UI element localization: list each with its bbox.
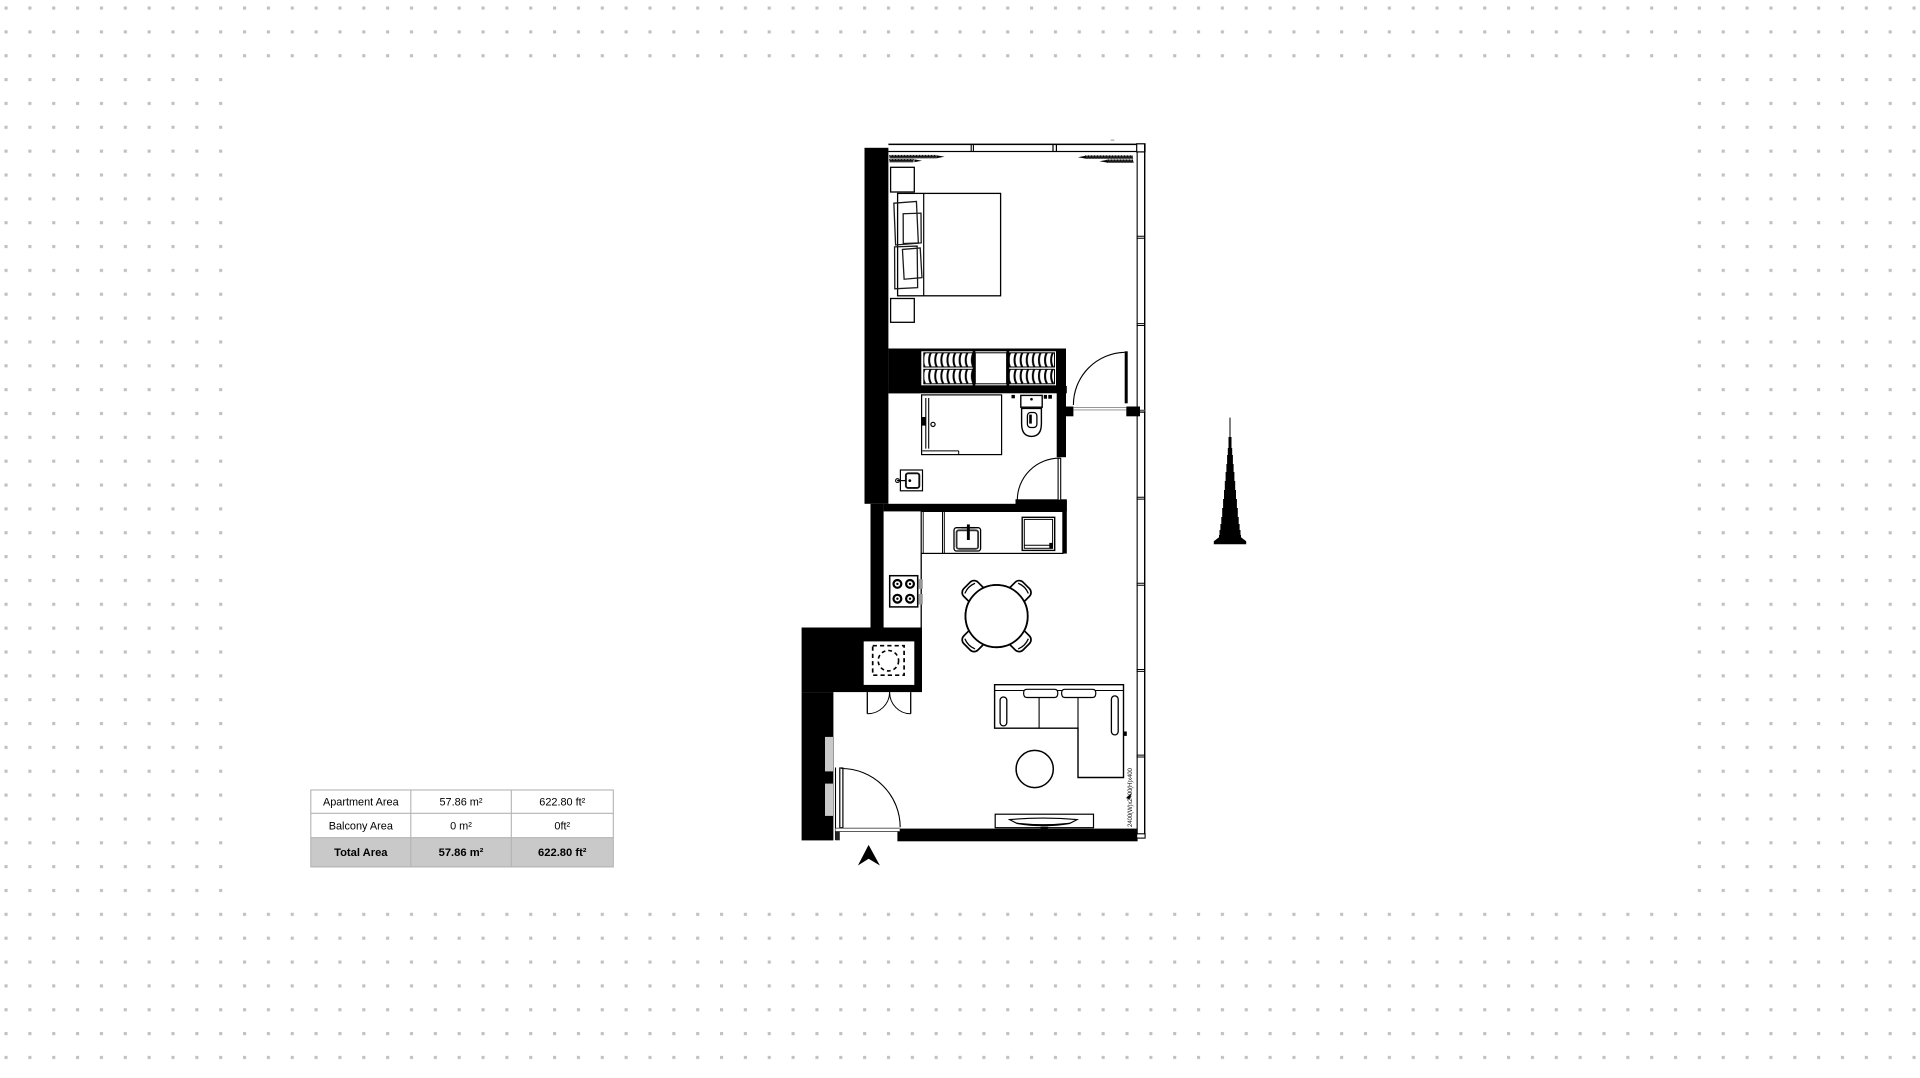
svg-text:622.80 ft²: 622.80 ft²: [539, 797, 585, 809]
svg-text:0 m²: 0 m²: [450, 820, 472, 832]
svg-text:57.86 m²: 57.86 m²: [440, 797, 483, 809]
svg-text:Total Area: Total Area: [334, 847, 388, 859]
svg-text:622.80 ft²: 622.80 ft²: [538, 847, 587, 859]
svg-text:Balcony Area: Balcony Area: [329, 820, 394, 832]
svg-text:Apartment Area: Apartment Area: [323, 797, 400, 809]
svg-text:0ft²: 0ft²: [554, 820, 570, 832]
svg-text:57.86 m²: 57.86 m²: [439, 847, 484, 859]
